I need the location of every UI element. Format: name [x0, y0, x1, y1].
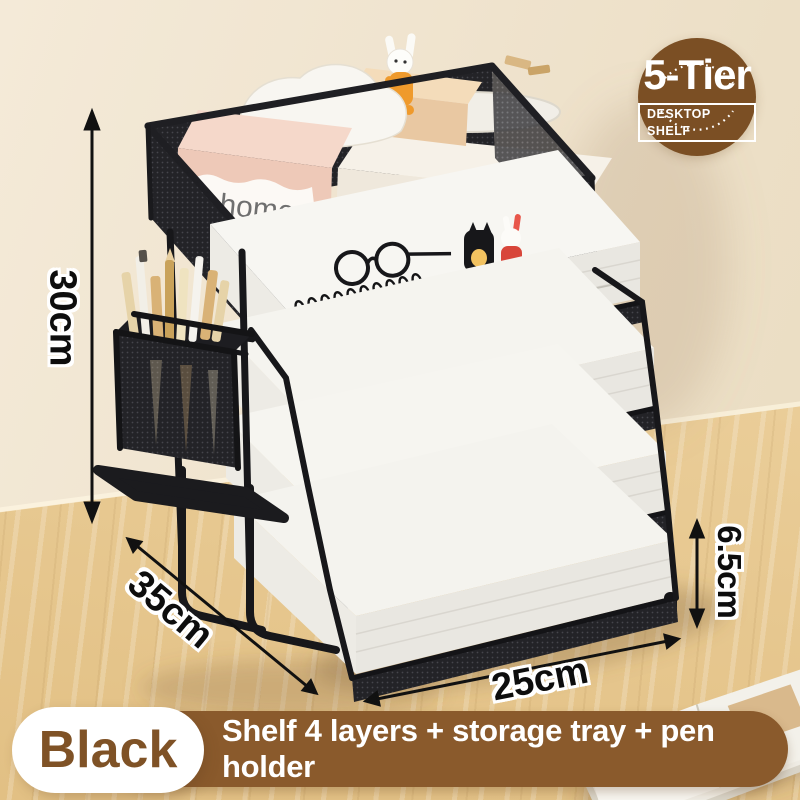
footer-description-bar: Shelf 4 layers + storage tray + pen hold…: [110, 711, 788, 787]
color-name-label: Black: [39, 720, 178, 780]
product-image: home: [0, 0, 800, 800]
tier-badge: 5-Tier DESKTOP SHELF: [638, 38, 756, 156]
color-name-pill: Black: [12, 707, 204, 793]
wooden-clips: [504, 55, 550, 76]
footer-description: Shelf 4 layers + storage tray + pen hold…: [222, 713, 788, 785]
badge-dotted-arcs: [638, 38, 756, 156]
dimension-height-label: 30cm: [41, 269, 84, 366]
dimension-tier-height-label: 6.5cm: [710, 525, 748, 619]
